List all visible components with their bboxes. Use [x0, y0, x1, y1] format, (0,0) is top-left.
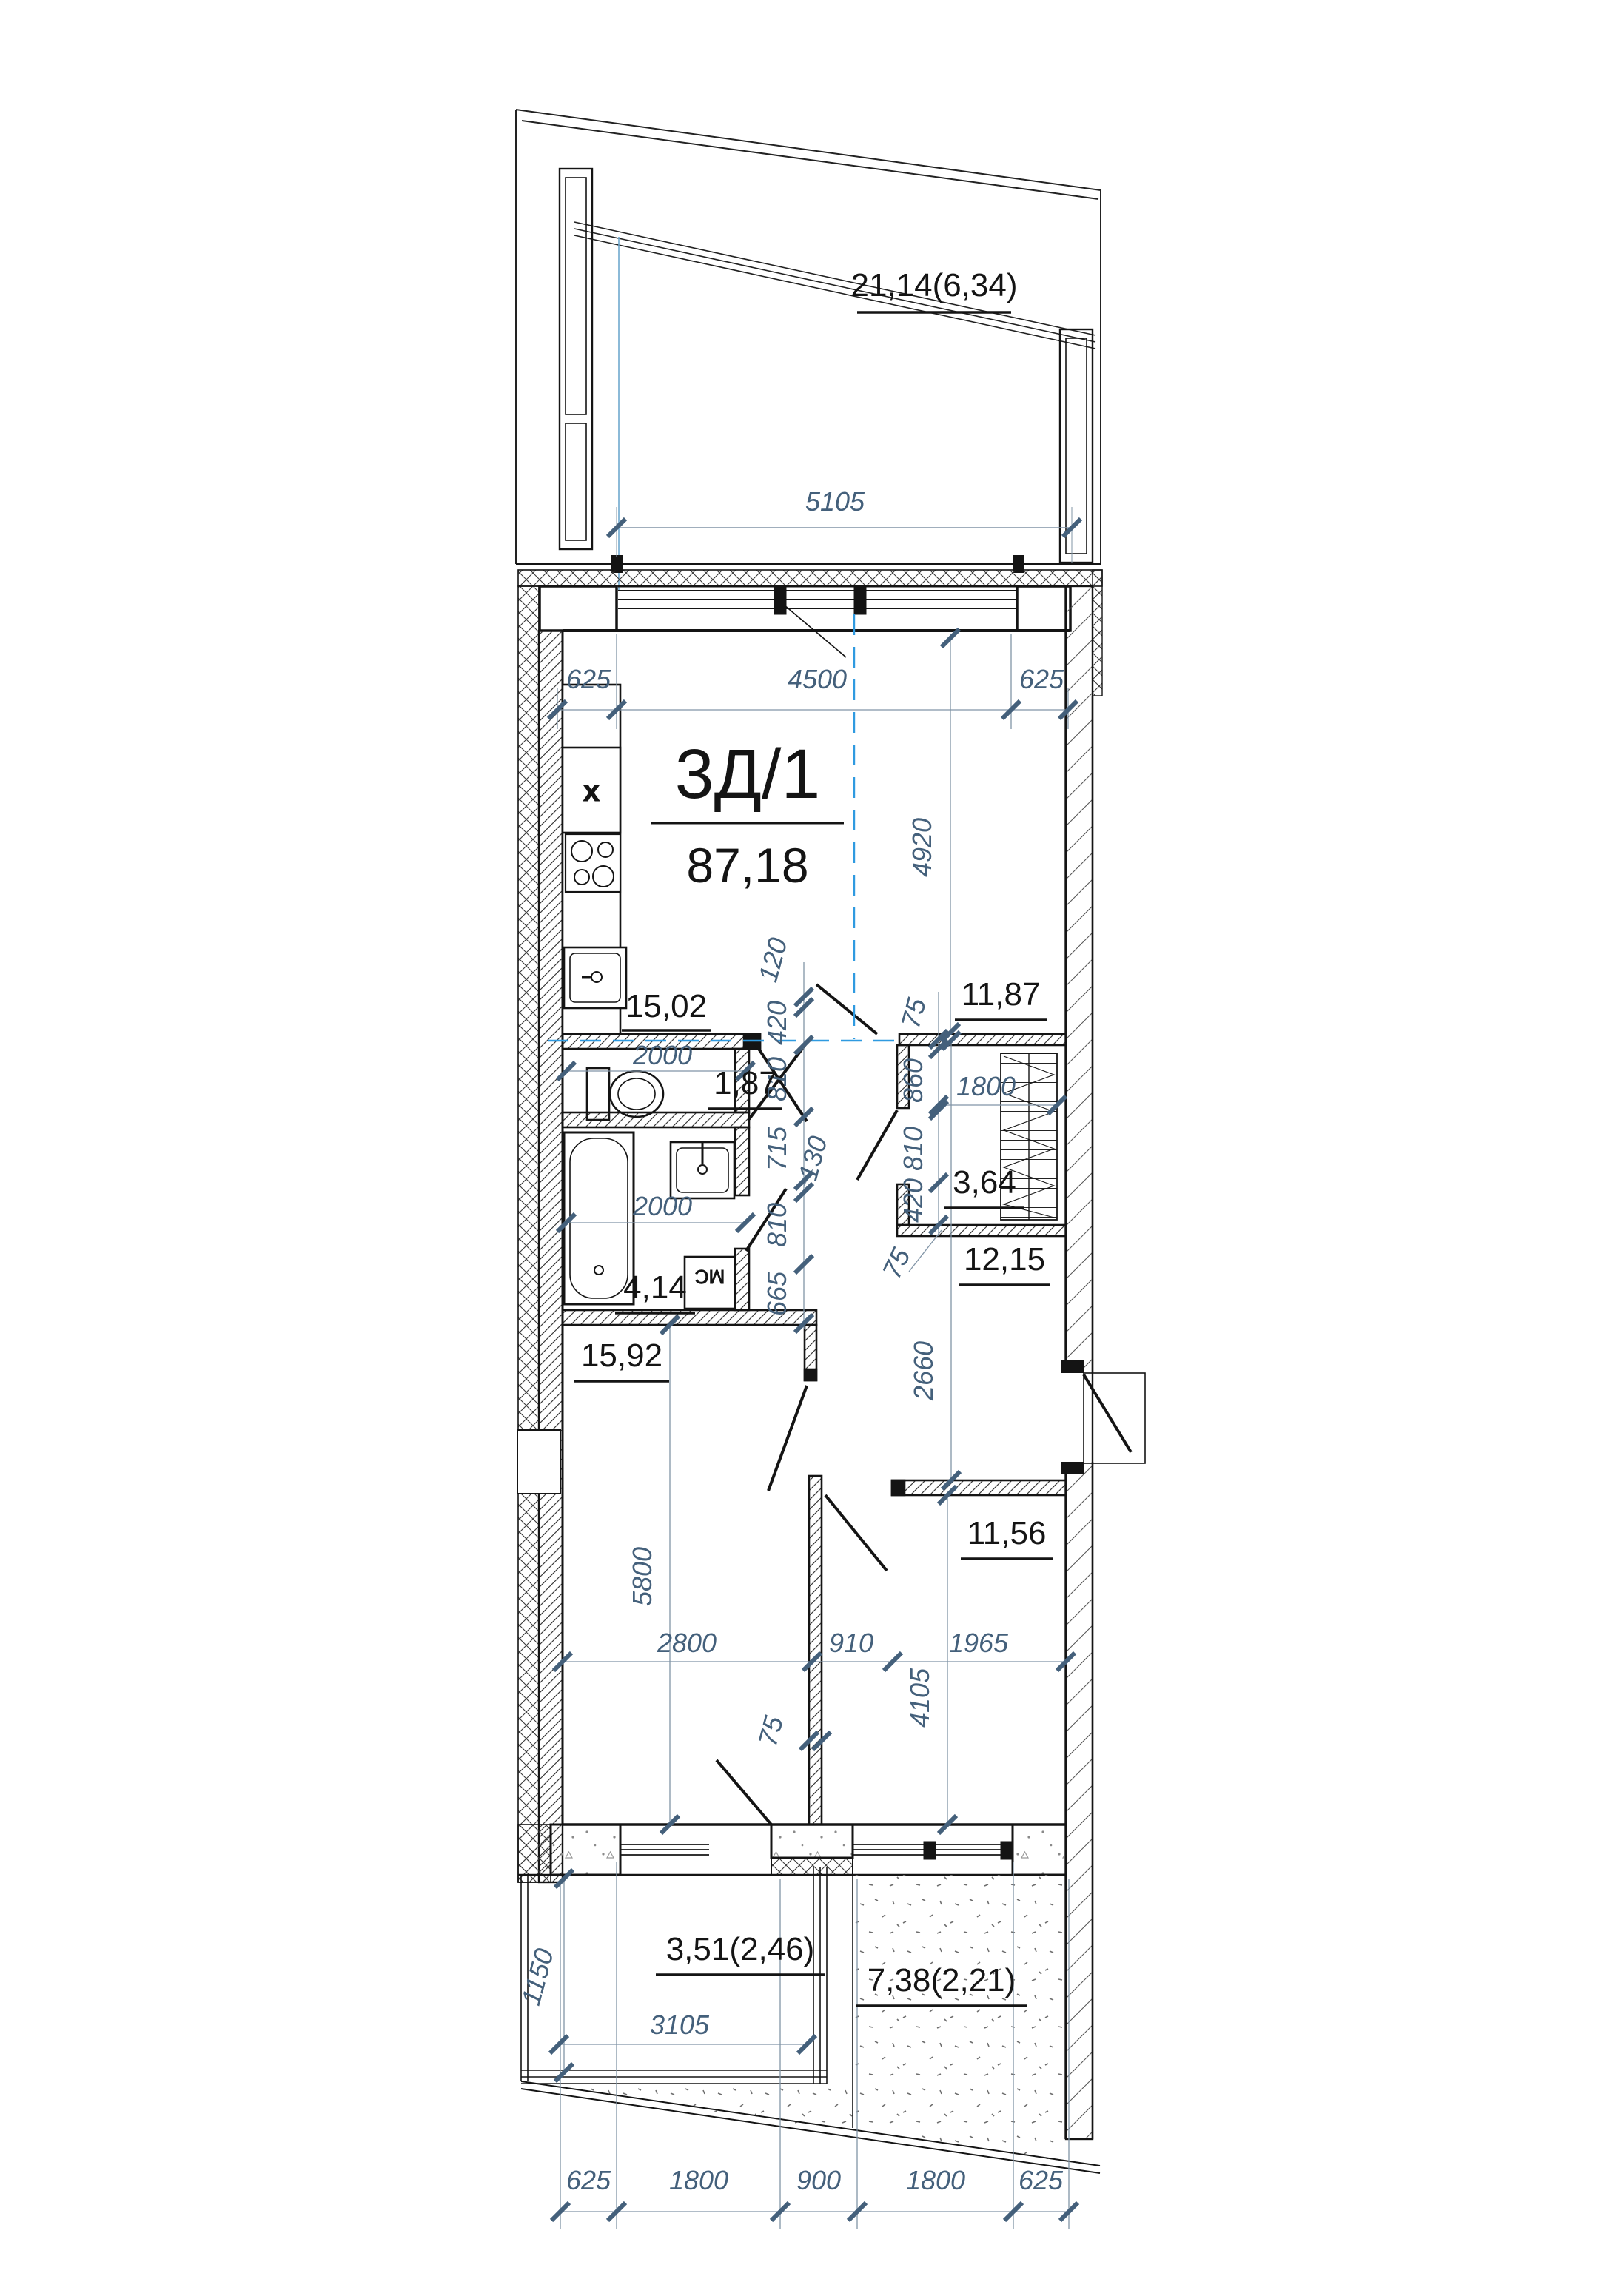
dim-4500: 4500 — [788, 664, 847, 694]
dim-130: 130 — [792, 1132, 833, 1184]
dim-5105: 5105 — [608, 486, 1081, 563]
dim-625-right: 625 — [1019, 664, 1064, 694]
dim-1150: 1150 — [515, 1945, 560, 2008]
bath-area-label: 4,14 — [623, 1269, 687, 1306]
top-wall-pier-right — [1017, 586, 1070, 631]
dim-715: 715 — [762, 1126, 792, 1171]
dim-75-partition: 75 — [752, 1712, 789, 1749]
unit-code-label: 3Д/1 — [675, 735, 820, 813]
washing-machine-label: МС — [695, 1266, 725, 1288]
bottom-wall — [518, 1825, 1066, 1882]
floor-plan-page: 21,14(6,34) 5105 — [0, 0, 1624, 2296]
dim-b-1800-l: 1800 — [669, 2165, 728, 2195]
balcony-top: 21,14(6,34) 5105 — [516, 110, 1101, 591]
dim-2660: 2660 — [908, 1341, 939, 1401]
floor-plan-drawing: 21,14(6,34) 5105 — [0, 0, 1624, 2296]
terrace-stipple — [521, 1875, 1064, 2161]
top-wall-pier-left — [540, 586, 617, 631]
right-wall-insulation-top — [1093, 570, 1102, 696]
dim-665: 665 — [762, 1271, 792, 1316]
dim-910: 910 — [829, 1628, 873, 1658]
dim-75-b: 75 — [876, 1243, 916, 1283]
dim-810-c: 810 — [898, 1127, 928, 1171]
left-wall-masonry — [539, 631, 563, 1882]
stove-icon — [566, 834, 620, 892]
room-right-area-label: 11,87 — [962, 976, 1041, 1013]
dim-5800: 5800 — [627, 1547, 657, 1606]
loggia-area-label: 3,51(2,46) — [666, 1931, 815, 1967]
dim-4105: 4105 — [905, 1668, 935, 1728]
vent-shaft-icon: x — [583, 775, 600, 808]
wardrobe-area-label: 3,64 — [953, 1164, 1016, 1201]
dim-1800-rail: 1800 — [956, 1071, 1016, 1101]
hall-area-label: 12,15 — [964, 1241, 1045, 1278]
dim-2000-wc: 2000 — [632, 1040, 692, 1070]
left-wall-insulation — [518, 586, 539, 1882]
dim-b-625-l: 625 — [566, 2165, 611, 2195]
dim-4920: 4920 — [907, 818, 937, 877]
dim-1965: 1965 — [949, 1628, 1009, 1658]
dim-75-a: 75 — [895, 994, 932, 1031]
bedroom-right-area-label: 11,56 — [967, 1515, 1047, 1551]
dim-3105: 3105 — [650, 2010, 710, 2040]
dim-810-b: 810 — [762, 1203, 792, 1247]
kitchen-sink-icon — [564, 947, 626, 1008]
terrace-area-label: 7,38(2,21) — [868, 1962, 1016, 1998]
dim-b-1800-r: 1800 — [906, 2165, 965, 2195]
top-window-band — [618, 586, 1018, 657]
dim-5105-label: 5105 — [805, 486, 865, 517]
dim-120: 120 — [752, 934, 793, 985]
dim-b-900: 900 — [796, 2165, 841, 2195]
kitchen-fixtures: x — [563, 685, 626, 1034]
kitchen-area-label: 15,02 — [625, 988, 707, 1024]
dim-2000-bath: 2000 — [632, 1191, 692, 1221]
top-insulation-strip — [518, 570, 1102, 586]
dim-420-right: 420 — [898, 1178, 928, 1223]
balcony-window-left — [560, 169, 592, 549]
unit-area-label: 87,18 — [686, 838, 808, 893]
dim-625-left: 625 — [566, 664, 611, 694]
dim-860: 860 — [898, 1058, 928, 1103]
dim-420-left: 420 — [762, 1001, 792, 1045]
wc-area-label: 1,87 — [714, 1065, 777, 1101]
dim-b-625-r: 625 — [1019, 2165, 1064, 2195]
balcony-top-area-label: 21,14(6,34) — [850, 267, 1017, 303]
left-wall-niche — [517, 1430, 560, 1494]
bedroom-left-area-label: 15,92 — [581, 1337, 662, 1374]
dim-2800: 2800 — [657, 1628, 717, 1658]
